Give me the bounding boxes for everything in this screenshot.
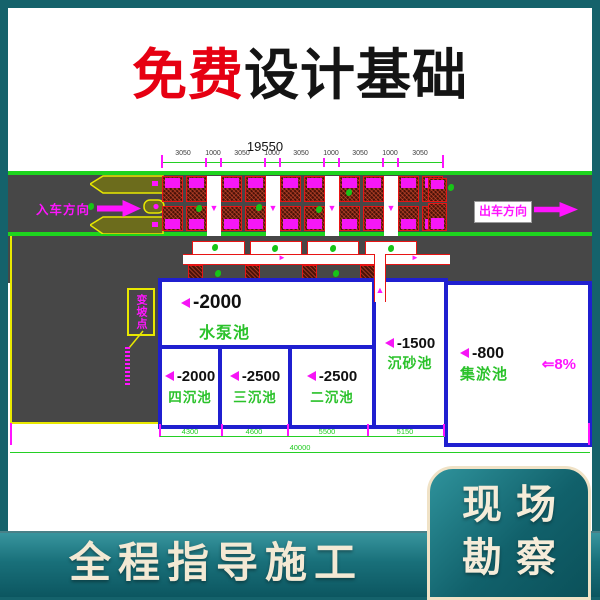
dim-tick [382,158,384,167]
depth-marker-icon [165,371,174,381]
dim-tick [10,423,12,445]
pool-name: 二沉池 [310,386,354,406]
pool-name: 集淤池 [460,363,508,384]
right-arrow-icon: ► [411,253,419,262]
wash-bay-grate [428,203,447,231]
wash-bay-grate [428,178,447,202]
tiny-annotation-text [125,347,130,385]
pool-depth: -2500 [307,368,357,386]
exit-direction-label: 出车方向 [474,201,532,223]
down-arrow-icon: ▼ [269,203,278,213]
pool-four: -2000 四沉池 [158,345,222,429]
dim-segment-label: 5150 [385,427,425,436]
dim-tick [264,158,266,167]
corner-panel: 现场 勘察 [427,466,591,600]
overall-dimension-total: 40000 [275,443,325,452]
pool-name: 四沉池 [168,386,212,406]
depth-marker-icon [230,371,239,381]
depth-marker-icon [460,348,469,358]
wash-bay-grate [339,176,384,231]
pool-depth: -1500 [385,335,435,353]
wash-bay-grate [280,176,325,231]
wash-bay-grate [162,176,207,231]
footer-banner-text: 全程指导施工 [0,531,432,597]
pool-name: 三沉池 [233,386,277,406]
down-arrow-icon: ▼ [387,203,396,213]
dim-segment-label: 1000 [198,150,228,157]
dim-tick [323,158,325,167]
pool-name: 水泵池 [199,319,250,343]
collector-channel: ► ► [183,254,450,265]
depth-marker-icon [385,338,394,348]
dim-tick [338,158,340,167]
dim-segment-label: 3050 [345,150,375,157]
dim-segment-label: 5500 [307,427,347,436]
dim-tick [279,158,281,167]
dim-tick [205,158,207,167]
up-arrow-icon: ▲ [376,285,385,295]
dim-segment-label: 1000 [257,150,287,157]
dim-segment-label: 1000 [375,150,405,157]
down-arrow-icon: ▼ [210,203,219,213]
pool-name: 沉砂池 [388,353,433,373]
dim-tick [220,158,222,167]
title-highlight: 免费 [132,44,244,106]
depth-marker-icon [307,371,316,381]
corner-panel-line1: 现场 [448,479,570,532]
pool-depth: -2000 [181,292,242,314]
pool-silt: -800 集淤池 ⇐8% [444,281,592,447]
pool-depth: -800 [460,345,508,363]
dim-segment-label: 3050 [286,150,316,157]
bottom-dimension-line [160,436,444,437]
dim-segment-label: 4600 [234,427,274,436]
dim-segment-label: 4300 [170,427,210,436]
dim-tick [161,155,163,168]
overall-dimension-line [10,452,590,453]
top-dimension-line [161,162,444,163]
corner-panel-line2: 勘察 [448,532,570,585]
title-rest: 设计基础 [244,44,468,106]
entry-direction-label: 入车方向 [36,199,90,218]
dim-segment-label: 3050 [405,150,435,157]
drain-channel-vertical: ▲ [374,254,386,302]
slope-annotation: ⇐8% [542,355,576,373]
dim-segment-label: 3050 [227,150,257,157]
pool-three: -2500 三沉池 [218,345,292,429]
dim-segment-label: 1000 [316,150,346,157]
pool-depth: -2000 [165,368,215,386]
dim-tick [397,158,399,167]
down-arrow-icon: ▼ [328,203,337,213]
depth-marker-icon [181,298,190,308]
right-arrow-icon: ► [278,253,286,262]
pool-two: -2500 二沉池 [288,345,376,429]
main-title: 免费设计基础 [0,45,600,106]
dim-tick [588,423,590,445]
page-background: 免费设计基础 19550 3050 1000 3050 1000 3050 10… [0,0,600,600]
dim-segment-label: 3050 [168,150,198,157]
dim-tick [442,155,444,168]
pool-depth: -2500 [230,368,280,386]
